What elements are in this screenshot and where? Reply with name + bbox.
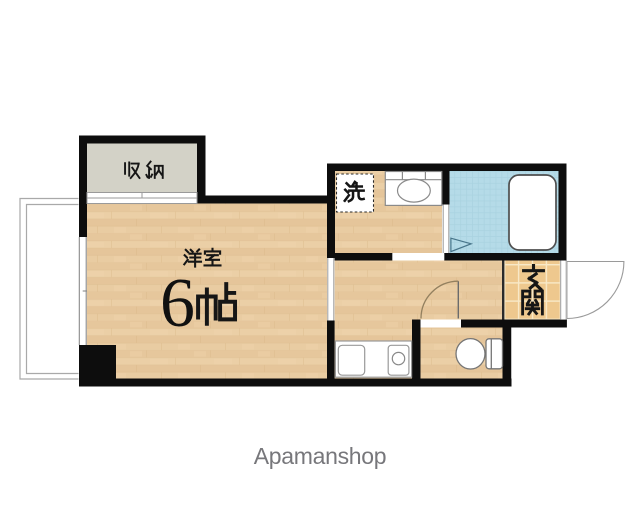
svg-text:Apamanshop: Apamanshop xyxy=(254,443,387,469)
svg-text:6: 6 xyxy=(160,265,195,342)
